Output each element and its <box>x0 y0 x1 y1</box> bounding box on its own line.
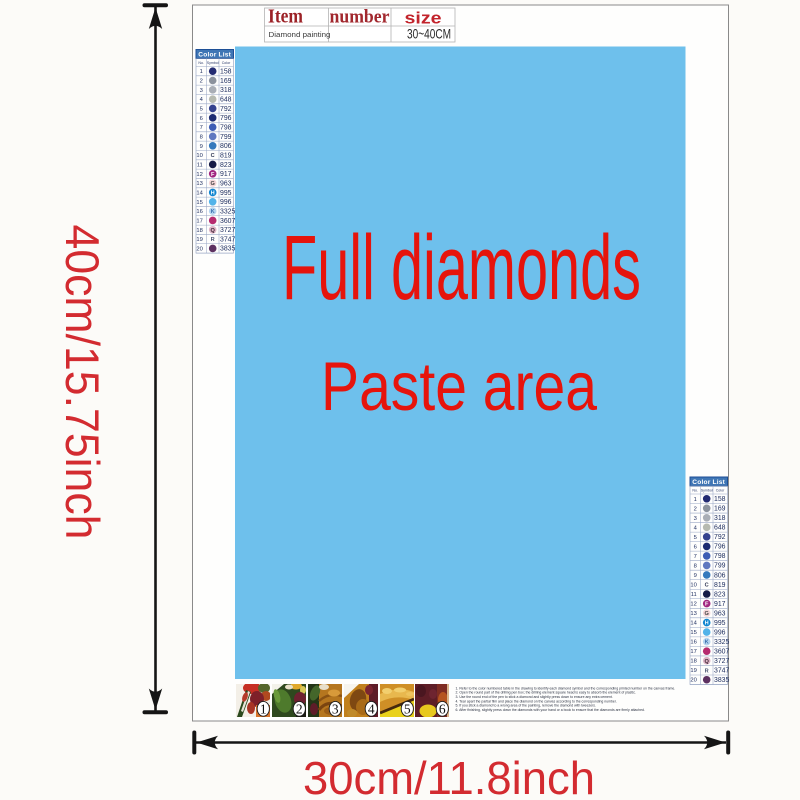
svg-text:995: 995 <box>714 620 726 627</box>
svg-text:3727: 3727 <box>714 658 729 665</box>
svg-text:995: 995 <box>220 190 232 197</box>
svg-text:16: 16 <box>690 640 696 646</box>
svg-text:6: 6 <box>200 116 203 122</box>
svg-text:158: 158 <box>714 496 726 503</box>
svg-text:798: 798 <box>220 124 232 131</box>
svg-text:13: 13 <box>690 611 696 617</box>
svg-text:792: 792 <box>220 106 232 113</box>
svg-text:19: 19 <box>196 237 202 243</box>
svg-text:F: F <box>705 602 709 608</box>
svg-text:917: 917 <box>714 601 726 608</box>
svg-text:20: 20 <box>196 246 202 252</box>
svg-text:9: 9 <box>694 573 697 579</box>
svg-text:3607: 3607 <box>220 218 235 225</box>
svg-text:792: 792 <box>714 534 726 541</box>
svg-text:K: K <box>705 640 709 646</box>
svg-text:796: 796 <box>714 544 726 551</box>
svg-text:40cm/15.75inch: 40cm/15.75inch <box>56 225 109 540</box>
svg-text:H: H <box>211 191 215 197</box>
svg-text:963: 963 <box>220 180 232 187</box>
svg-text:3835: 3835 <box>220 246 235 253</box>
svg-text:798: 798 <box>714 553 726 560</box>
svg-text:5: 5 <box>200 106 203 112</box>
svg-text:2: 2 <box>200 79 203 85</box>
svg-text:1: 1 <box>260 702 267 717</box>
svg-text:169: 169 <box>220 78 232 85</box>
svg-text:799: 799 <box>220 134 232 141</box>
svg-text:19: 19 <box>690 668 696 674</box>
svg-text:No.: No. <box>198 61 204 65</box>
svg-text:R: R <box>705 668 709 674</box>
svg-text:7: 7 <box>200 125 203 131</box>
svg-text:158: 158 <box>220 68 232 75</box>
svg-text:806: 806 <box>220 143 232 150</box>
svg-text:K: K <box>211 209 215 215</box>
svg-text:15: 15 <box>196 200 202 206</box>
svg-text:No.: No. <box>692 489 698 493</box>
svg-text:10: 10 <box>196 153 202 159</box>
svg-text:number: number <box>330 7 391 28</box>
svg-text:3325: 3325 <box>220 208 235 215</box>
svg-text:819: 819 <box>714 582 726 589</box>
svg-text:648: 648 <box>714 525 726 532</box>
svg-text:Full diamonds: Full diamonds <box>282 217 641 319</box>
svg-text:Paste area: Paste area <box>321 348 598 425</box>
svg-text:1: 1 <box>694 497 697 503</box>
svg-text:6: 6 <box>694 544 697 550</box>
svg-text:12: 12 <box>690 602 696 608</box>
svg-text:5: 5 <box>694 535 697 541</box>
svg-text:30cm/11.8inch: 30cm/11.8inch <box>303 752 595 800</box>
svg-text:12: 12 <box>196 172 202 178</box>
svg-text:G: G <box>211 181 215 187</box>
svg-text:963: 963 <box>714 610 726 617</box>
svg-text:8: 8 <box>200 134 203 140</box>
svg-text:819: 819 <box>220 152 232 159</box>
svg-text:Q: Q <box>705 659 710 665</box>
svg-text:1: 1 <box>200 69 203 75</box>
svg-text:996: 996 <box>220 199 232 206</box>
svg-text:996: 996 <box>714 629 726 636</box>
svg-text:2: 2 <box>694 506 697 512</box>
svg-text:15: 15 <box>690 630 696 636</box>
svg-text:806: 806 <box>714 572 726 579</box>
svg-text:11: 11 <box>197 162 203 168</box>
svg-text:799: 799 <box>714 563 726 570</box>
svg-text:18: 18 <box>690 659 696 665</box>
svg-text:917: 917 <box>220 171 232 178</box>
svg-text:2: 2 <box>296 702 303 717</box>
svg-text:3747: 3747 <box>714 668 729 675</box>
svg-text:823: 823 <box>714 591 726 598</box>
svg-text:H: H <box>705 621 709 627</box>
svg-text:823: 823 <box>220 162 232 169</box>
svg-text:Diamond painting: Diamond painting <box>269 30 331 39</box>
svg-text:C: C <box>211 153 215 159</box>
svg-text:3325: 3325 <box>714 639 729 646</box>
svg-text:18: 18 <box>196 228 202 234</box>
svg-text:30~40CM: 30~40CM <box>407 26 451 42</box>
svg-text:Color List: Color List <box>692 479 725 486</box>
svg-text:Color List: Color List <box>198 52 231 59</box>
svg-text:F: F <box>211 172 215 178</box>
svg-text:3835: 3835 <box>714 677 729 684</box>
svg-text:G: G <box>705 611 709 617</box>
svg-text:3727: 3727 <box>220 227 235 234</box>
svg-text:14: 14 <box>690 621 697 627</box>
svg-text:Q: Q <box>211 228 216 234</box>
svg-text:Color: Color <box>222 61 231 65</box>
svg-text:3: 3 <box>332 702 339 717</box>
svg-text:796: 796 <box>220 115 232 122</box>
svg-text:14: 14 <box>196 190 203 196</box>
svg-text:Item: Item <box>268 7 303 28</box>
svg-text:318: 318 <box>220 87 232 94</box>
svg-text:5: 5 <box>404 702 411 717</box>
svg-text:10: 10 <box>690 582 696 588</box>
svg-text:11: 11 <box>691 592 697 598</box>
svg-text:4: 4 <box>368 702 375 717</box>
svg-text:9: 9 <box>200 144 203 150</box>
svg-text:Color: Color <box>716 489 725 493</box>
svg-text:13: 13 <box>196 181 202 187</box>
svg-text:3: 3 <box>694 516 697 522</box>
svg-text:17: 17 <box>196 218 202 224</box>
svg-text:8: 8 <box>694 563 697 569</box>
svg-text:R: R <box>211 237 215 243</box>
svg-text:3607: 3607 <box>714 648 729 655</box>
svg-text:16: 16 <box>196 209 202 215</box>
svg-text:20: 20 <box>690 678 696 684</box>
svg-text:Symbol: Symbol <box>207 61 219 65</box>
svg-text:C: C <box>705 583 709 589</box>
svg-text:7: 7 <box>694 554 697 560</box>
svg-text:17: 17 <box>690 649 696 655</box>
svg-text:3747: 3747 <box>220 236 235 243</box>
svg-text:Symbol: Symbol <box>701 489 713 493</box>
svg-text:3: 3 <box>200 88 203 94</box>
svg-text:648: 648 <box>220 96 232 103</box>
svg-text:318: 318 <box>714 515 726 522</box>
svg-text:6. After finishing, slightly p: 6. After finishing, slightly press down … <box>456 708 645 712</box>
svg-text:6: 6 <box>439 702 446 717</box>
svg-text:169: 169 <box>714 506 726 513</box>
